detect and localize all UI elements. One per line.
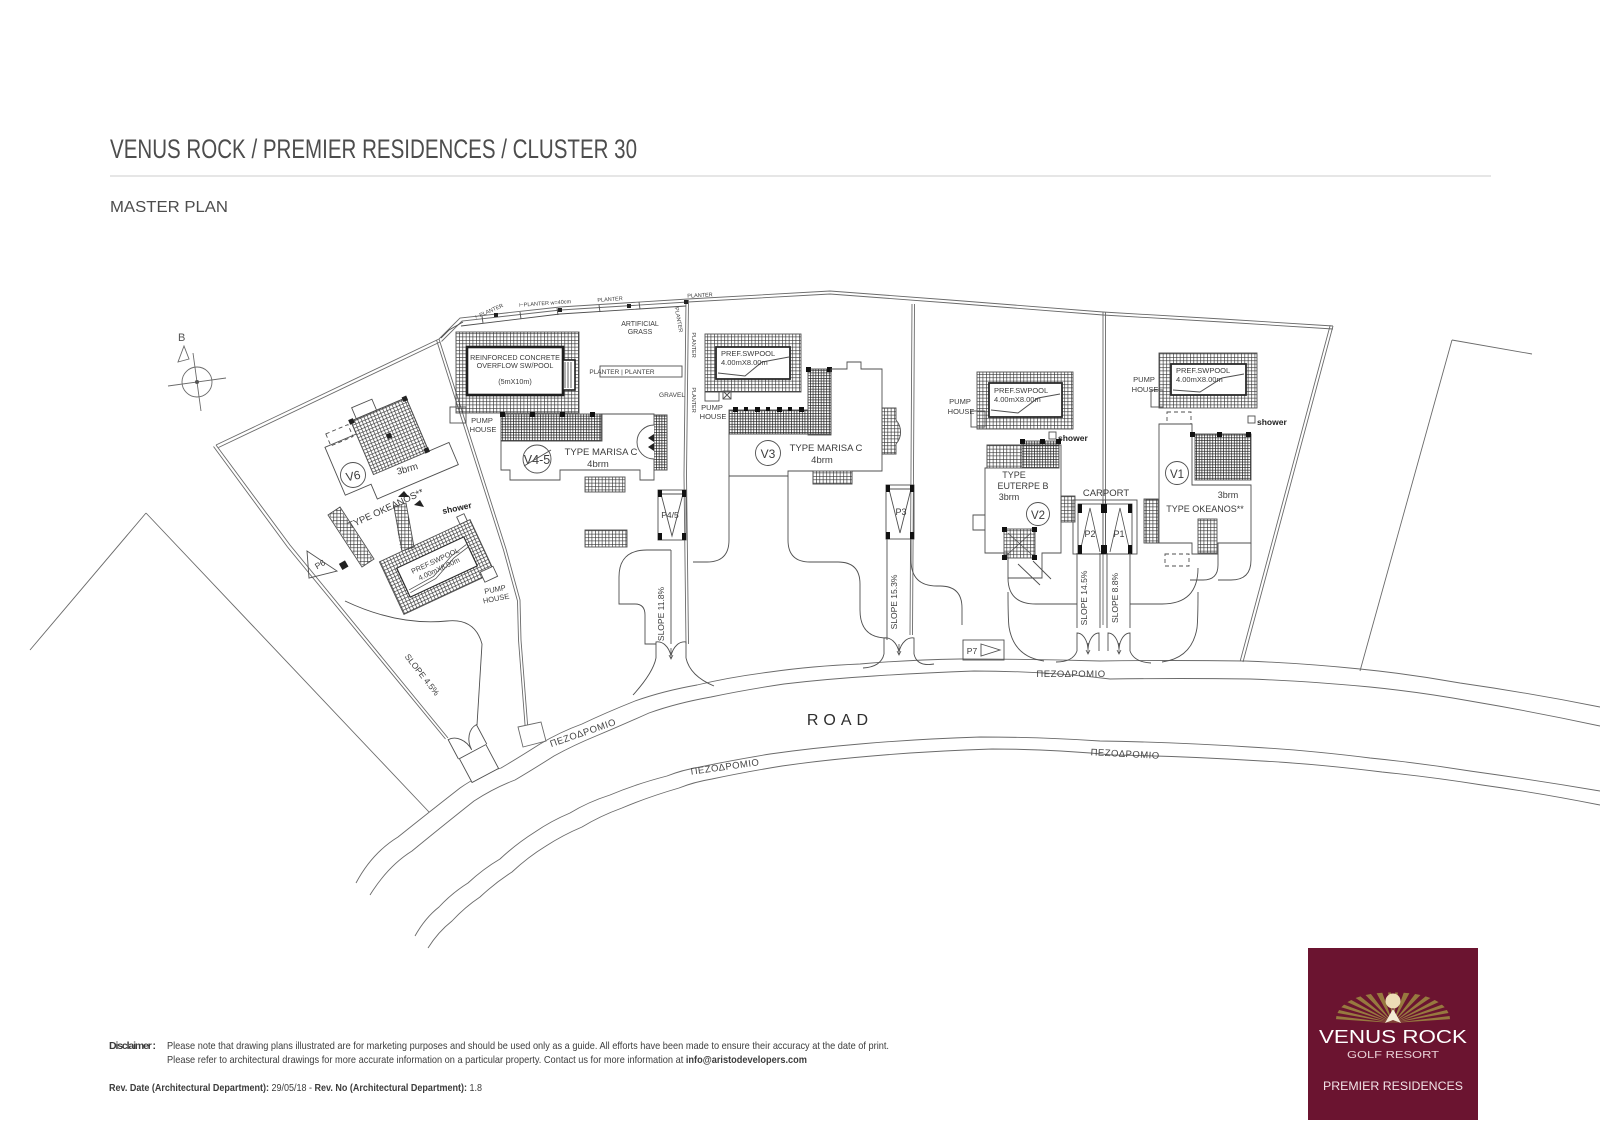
svg-text:PLANTER | PLANTER: PLANTER | PLANTER	[589, 369, 655, 376]
svg-text:HOUSE: HOUSE	[948, 407, 975, 416]
svg-text:PREMIER RESIDENCES: PREMIER RESIDENCES	[1323, 1081, 1463, 1093]
svg-text:PUMP: PUMP	[471, 416, 493, 425]
svg-text:HOUSE: HOUSE	[470, 425, 497, 434]
svg-text:Please note that drawing plans: Please note that drawing plans illustrat…	[167, 1040, 889, 1052]
svg-text:4.00mX8.00m: 4.00mX8.00m	[721, 358, 768, 367]
svg-text:SLOPE 15.3%: SLOPE 15.3%	[889, 574, 899, 629]
svg-text:SLOPE 8.8%: SLOPE 8.8%	[1110, 573, 1120, 624]
svg-text:4brm: 4brm	[587, 459, 609, 470]
svg-text:V3: V3	[761, 447, 776, 461]
svg-text:VENUS ROCK: VENUS ROCK	[1319, 1027, 1467, 1047]
svg-text:OVERFLOW SW/POOL: OVERFLOW SW/POOL	[477, 361, 554, 370]
svg-text:3brm: 3brm	[1218, 490, 1239, 500]
svg-text:SLOPE 11.8%: SLOPE 11.8%	[656, 586, 666, 641]
svg-text:ROAD: ROAD	[807, 712, 873, 729]
svg-text:MASTER PLAN: MASTER PLAN	[110, 199, 228, 216]
svg-text:TYPE MARISA C: TYPE MARISA C	[790, 443, 863, 454]
svg-text:VENUS ROCK / PREMIER RESIDENCE: VENUS ROCK / PREMIER RESIDENCES / CLUSTE…	[110, 134, 637, 164]
svg-text:PUMP: PUMP	[1133, 375, 1155, 384]
svg-text:P1: P1	[1113, 529, 1124, 539]
svg-text:shower: shower	[1257, 417, 1287, 427]
svg-text:PLANTER: PLANTER	[690, 387, 696, 412]
svg-text:TYPE MARISA C: TYPE MARISA C	[565, 447, 638, 458]
svg-text:P4/5: P4/5	[661, 510, 679, 520]
svg-text:4brm: 4brm	[811, 455, 833, 466]
svg-text:HOUSE: HOUSE	[700, 412, 727, 421]
svg-text:PLANTER: PLANTER	[690, 332, 696, 357]
svg-text:TYPE: TYPE	[1002, 470, 1026, 480]
svg-text:PUMP: PUMP	[949, 397, 971, 406]
svg-text:CARPORT: CARPORT	[1083, 488, 1129, 499]
svg-text:shower: shower	[1058, 433, 1088, 443]
svg-text:V1: V1	[1170, 469, 1184, 481]
svg-text:P2: P2	[1084, 529, 1095, 539]
svg-text:ΠΕΖΟΔΡΟΜΙΟ: ΠΕΖΟΔΡΟΜΙΟ	[1036, 669, 1105, 680]
svg-text:V2: V2	[1031, 510, 1045, 522]
svg-text:PREF.SWPOOL: PREF.SWPOOL	[1176, 366, 1230, 375]
svg-text:Disclaimer :: Disclaimer :	[109, 1040, 156, 1052]
svg-text:GRASS: GRASS	[628, 329, 653, 336]
svg-text:EUTERPE B: EUTERPE B	[997, 481, 1048, 491]
svg-text:SLOPE 14.5%: SLOPE 14.5%	[1079, 570, 1089, 625]
svg-text:P3: P3	[895, 507, 906, 517]
svg-text:B: B	[178, 332, 185, 344]
svg-text:Rev. Date (Architectural Depar: Rev. Date (Architectural Department): 29…	[109, 1082, 482, 1094]
svg-text:4.00mX8.00m: 4.00mX8.00m	[1176, 375, 1223, 384]
svg-text:Please refer to architectural: Please refer to architectural drawings f…	[167, 1054, 807, 1066]
svg-text:PREF.SWPOOL: PREF.SWPOOL	[721, 349, 775, 358]
svg-text:PUMP: PUMP	[701, 403, 723, 412]
svg-text:4.00mX8.00m: 4.00mX8.00m	[994, 395, 1041, 404]
svg-text:3brm: 3brm	[999, 492, 1020, 502]
svg-text:ARTIFICIAL: ARTIFICIAL	[621, 321, 659, 328]
svg-text:PREF.SWPOOL: PREF.SWPOOL	[994, 386, 1048, 395]
svg-text:(5mX10m): (5mX10m)	[498, 377, 532, 386]
svg-text:V6: V6	[345, 468, 362, 484]
svg-text:P7: P7	[967, 646, 978, 656]
svg-text:GOLF RESORT: GOLF RESORT	[1347, 1049, 1440, 1061]
svg-text:GRAVEL: GRAVEL	[659, 392, 685, 399]
svg-text:TYPE OKEANOS**: TYPE OKEANOS**	[1166, 504, 1244, 514]
svg-text:V4-5: V4-5	[524, 453, 550, 467]
svg-text:HOUSE: HOUSE	[1132, 385, 1159, 394]
